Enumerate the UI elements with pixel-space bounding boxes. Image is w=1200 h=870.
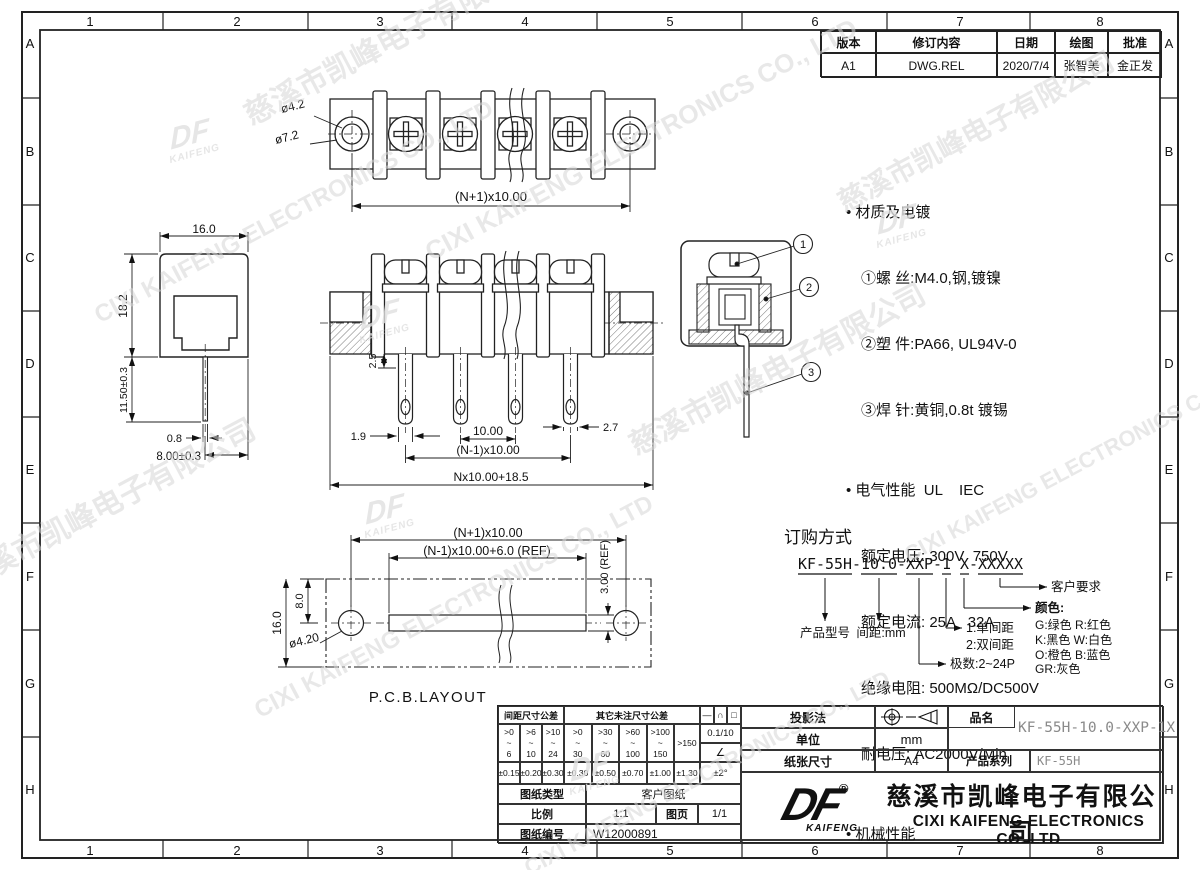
solder-pins [399,354,578,424]
ordering-color-row: K:黑色 W:白色 [1035,632,1112,647]
ordering-spacing1-label: 1:单间距 [966,621,1014,635]
dim-slot-length: (N-1)x10.00+6.0 (REF) [423,544,550,558]
company-name-en: CIXI KAIFENG ELECTRONICS CO.,LTD [894,813,1163,844]
zone-col: 3 [376,14,383,29]
zone-col: 5 [666,843,673,858]
projection-cell [875,706,948,728]
zone-row: D [25,356,34,371]
balloons [794,235,821,382]
balloon-3: 3 [808,367,814,379]
tol-angle-value: ±2° [700,762,741,784]
unit-label: 单位 [741,728,875,750]
dim-pin-width: 1.9 [351,431,366,443]
title-block: 间距尺寸公差 其它未注尺寸公差 — ∩ □ >0 ~ 6 >6 ~ 10 >10… [497,705,1163,843]
zone-col: 1 [86,14,93,29]
company-logo-subtext: KAIFENG [806,823,858,834]
section-screw [707,253,761,284]
dim-slot-width: 3.00 (REF) [599,540,611,594]
drawing-type-label: 图纸类型 [498,784,586,804]
tol-value: ±0.70 [619,762,647,784]
zone-col: 6 [811,14,818,29]
tol-value: ±0.30 [564,762,592,784]
material-item: ③焊 针:黄铜,0.8t 镀锡 [846,400,1180,422]
material-item: ②塑 件:PA66, UL94V-0 [846,334,1180,356]
zone-row: F [26,569,34,584]
body-profile-outline [160,254,248,357]
balloon-1: 1 [800,239,806,251]
zone-row: A [1165,36,1174,51]
zone-col: 1 [86,843,93,858]
electrical-title: • 电气性能 UL IEC [846,480,1180,502]
part-name-value: KF-55H-10.0-XXP-1X [1018,706,1164,750]
scale-label: 比例 [498,804,586,824]
dim-pin-offset: 8.00±0.3 [156,451,201,463]
revision-content: DWG.REL [876,53,997,78]
dim-hole-inner: ø4.2 [279,96,306,115]
tol-pitch-header: 间距尺寸公差 [498,706,564,724]
tol-flatness-value: 0.1/10 [700,724,741,743]
tol-range: >10 ~ 24 [542,724,564,762]
dim-board-width: 16.0 [270,611,284,635]
pcb-slot [389,615,586,631]
tol-value: ±1.00 [647,762,675,784]
revision-header: 日期 [997,31,1055,53]
zone-col: 4 [521,14,528,29]
section-solder-pin [735,325,749,437]
part-name-label: 品名 [948,706,1015,728]
material-item: ①螺 丝:M4.0,钢,镀镍 [846,268,1180,290]
tol-range: >30 ~ 60 [592,724,620,762]
zone-col: 3 [376,843,383,858]
dim-body-width: 16.0 [192,224,216,236]
drawing-type-value: 客户图纸 [586,784,741,804]
zone-row: A [26,36,35,51]
company-logo: DF® KAIFENG [756,781,876,841]
side-view-drawing: 16.0 18.2 11.50±0.3 0.8 8.00±0.3 [98,224,320,466]
drawing-sheet: 慈溪市凯峰电子有限公司 CIXI KAIFENG ELECTRONICS CO.… [0,0,1200,870]
dim-pin-width: 0.8 [167,433,182,445]
dim-2-5: 2.5 [367,354,379,369]
dim-pin-length: 11.50±0.3 [118,367,130,413]
zone-col: 7 [956,14,963,29]
angle-symbol-icon: ∠ [700,743,741,762]
company-logo-text: DF [777,781,846,827]
company-strip: DF® KAIFENG 慈溪市凯峰电子有限公司 CIXI KAIFENG ELE… [741,772,1164,844]
zone-col: 2 [233,14,240,29]
tol-range: >150 [674,724,700,762]
revision-header: 修订内容 [876,31,997,53]
section-clamp [719,289,751,325]
revision-header: 批准 [1108,31,1162,53]
ordering-title: 订购方式 [784,528,852,547]
first-angle-projection-icon [879,708,945,726]
tol-range: >100 ~ 150 [647,724,675,762]
straightness-symbol-icon: — [700,706,714,724]
series-value: KF-55H [1030,750,1164,772]
tol-value: ±0.15 [498,762,520,784]
ordering-color-row: G:绿色 R:红色 [1035,617,1111,632]
material-title: • 材质及电镀 [846,202,1180,224]
dim-hole-outer: ø7.2 [273,127,300,146]
projection-label: 投影法 [741,706,875,728]
paper-size-value: A4 [875,750,948,772]
zone-row: H [25,782,34,797]
ordering-pitch-label: 间距:mm [856,626,905,640]
pcb-layout-drawing: (N+1)x10.00 (N-1)x10.00+6.0 (REF) 3.00 (… [256,527,688,719]
revision-date: 2020/7/4 [997,53,1055,78]
revision-drawn-by: 张智美 [1055,53,1108,78]
ordering-color-row: O:橙色 B:蓝色 [1035,647,1110,662]
scale-value: 1:1 [586,804,656,824]
revision-table: 版本 修订内容 日期 绘图 批准 A1 DWG.REL 2020/7/4 张智美… [820,30,1161,77]
ordering-color-row: GR:灰色 [1035,662,1080,676]
top-view-drawing: (N+1)x10.00 ø4.2 ø7.2 [272,84,692,236]
zone-col: 5 [666,14,673,29]
zone-row: C [25,250,34,265]
ordering-info: 订购方式 KF-55H-10.0-XXP-1 X-XXXXX 产品型号 间距:m… [778,521,1182,693]
page-label: 图页 [656,804,698,824]
revision-approved-by: 金正发 [1108,53,1162,78]
squareness-symbol-icon: □ [727,706,741,724]
pcb-layout-title: P.C.B.LAYOUT [369,689,487,706]
tol-range: >60 ~ 100 [619,724,647,762]
revision-header: 版本 [821,31,876,53]
zone-col: 4 [521,843,528,858]
zone-col: 6 [811,843,818,858]
dim-body-height: 18.2 [116,294,130,318]
dim-pitch-overall: (N+1)x10.00 [455,189,527,204]
ordering-poles-label: 极数:2~24P [950,656,1015,671]
ordering-customer-label: 客户要求 [1051,579,1102,594]
pin-centerlines [406,347,571,433]
page-value: 1/1 [698,804,741,824]
dim-pitch-span: (N-1)x10.00 [456,443,520,457]
tol-range: >0 ~ 30 [564,724,592,762]
section-view-drawing: 1 2 3 [673,227,860,454]
tol-value: ±0.50 [592,762,620,784]
unit-value: mm [875,728,948,750]
revision-version: A1 [821,53,876,78]
tol-range: >0 ~ 6 [498,724,520,762]
dim-hole-diameter: ø4.20 [287,630,320,651]
balloon-2: 2 [806,282,812,294]
tol-value: ±1.30 [674,762,700,784]
drawing-number-label: 图纸编号 [498,824,586,844]
zone-col: 8 [1096,14,1103,29]
tol-value: ±0.30 [542,762,564,784]
ordering-spacing2-label: 2:双间距 [966,638,1014,652]
tol-other-header: 其它未注尺寸公差 [564,706,700,724]
revision-header: 绘图 [1055,31,1108,53]
dim-hole-pitch: (N+1)x10.00 [453,527,522,540]
ordering-part-code: KF-55H-10.0-XXP-1 X-XXXXX [798,555,1023,573]
profile-symbol-icon: ∩ [714,706,727,724]
tol-range: >6 ~ 10 [520,724,542,762]
dim-overall-length: Nx10.00+18.5 [453,470,528,484]
drawing-number-value: W12000891 [586,824,741,844]
dim-2-7: 2.7 [603,422,618,434]
zone-row: B [1165,144,1174,159]
ordering-model-label: 产品型号 [800,626,850,640]
tol-value: ±0.20 [520,762,542,784]
zone-row: B [26,144,35,159]
series-label: 产品系列 [948,750,1030,772]
zone-col: 2 [233,843,240,858]
ordering-color-title: 颜色: [1035,600,1064,615]
zone-row: E [26,462,35,477]
dim-pitch: 10.00 [473,424,503,438]
zone-row: G [25,676,35,691]
paper-size-label: 纸张尺寸 [741,750,875,772]
dim-hole-offset: 8.0 [294,593,306,608]
